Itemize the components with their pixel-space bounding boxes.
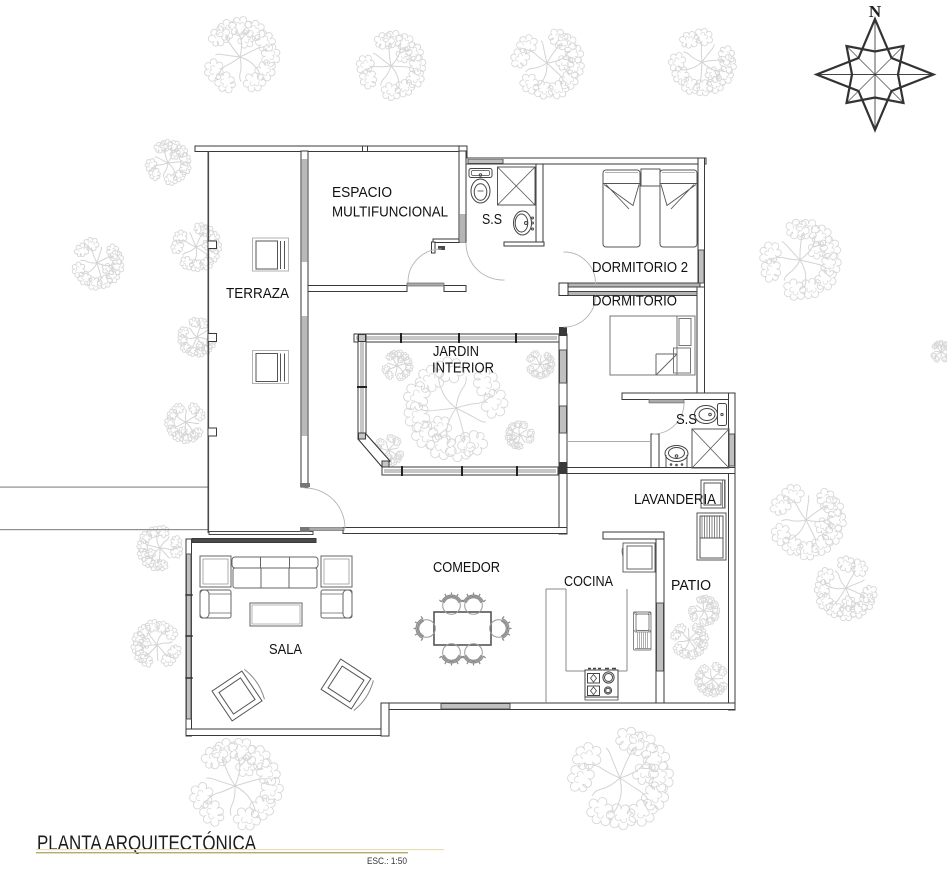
svg-text:DORMITORIO: DORMITORIO: [592, 293, 677, 310]
svg-text:ESC.: 1:50: ESC.: 1:50: [367, 856, 407, 867]
svg-text:PLANTA ARQUITECTÓNICA: PLANTA ARQUITECTÓNICA: [37, 832, 256, 855]
svg-text:PATIO: PATIO: [671, 577, 711, 594]
svg-text:COMEDOR: COMEDOR: [433, 559, 500, 576]
svg-text:MULTIFUNCIONAL: MULTIFUNCIONAL: [332, 204, 448, 221]
svg-text:TERRAZA: TERRAZA: [226, 285, 289, 302]
svg-text:ESPACIO: ESPACIO: [332, 184, 392, 201]
svg-text:COCINA: COCINA: [564, 573, 613, 590]
svg-text:INTERIOR: INTERIOR: [432, 360, 494, 377]
svg-text:S.S: S.S: [482, 211, 502, 228]
svg-text:DORMITORIO 2: DORMITORIO 2: [592, 259, 688, 276]
svg-text:SALA: SALA: [269, 641, 302, 658]
svg-text:JARDIN: JARDIN: [433, 343, 479, 360]
svg-text:S.S: S.S: [676, 411, 697, 428]
